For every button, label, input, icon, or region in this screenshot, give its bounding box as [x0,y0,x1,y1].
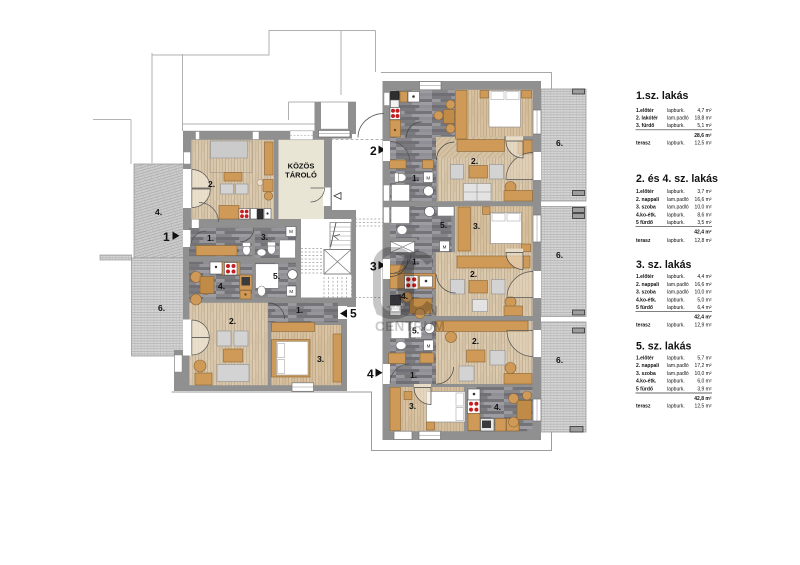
svg-text:4.: 4. [218,281,225,291]
svg-text:terasz: terasz [636,238,651,244]
svg-text:2.: 2. [208,179,215,189]
svg-text:lam.padló: lam.padló [667,371,689,377]
svg-text:42,4 m²: 42,4 m² [694,230,712,236]
svg-text:2.: 2. [472,336,479,346]
svg-text:lam.padló: lam.padló [667,363,689,369]
svg-text:2. és 4. sz. lakás: 2. és 4. sz. lakás [636,173,718,185]
svg-text:17,2 m²: 17,2 m² [695,363,712,369]
svg-text:5.: 5. [440,220,447,230]
svg-text:lapburk.: lapburk. [667,274,685,280]
svg-text:6,4 m²: 6,4 m² [697,305,712,311]
svg-text:2: 2 [370,144,377,158]
svg-text:M: M [426,175,430,180]
svg-text:M: M [427,343,431,348]
svg-text:4.: 4. [155,207,162,217]
svg-text:3.: 3. [261,232,268,242]
svg-text:M: M [289,229,293,234]
svg-text:5 fürdő: 5 fürdő [636,220,653,226]
svg-text:4,4 m²: 4,4 m² [697,274,712,280]
svg-text:8,6 m²: 8,6 m² [697,212,712,218]
svg-text:1.előtér: 1.előtér [636,274,654,280]
svg-text:2. nappali: 2. nappali [636,197,660,203]
svg-text:CENTRUM: CENTRUM [375,319,445,334]
svg-text:lapburk.: lapburk. [667,212,685,218]
svg-text:lapburk.: lapburk. [667,404,685,410]
svg-text:lam.padló: lam.padló [667,290,689,296]
svg-text:12,5 m²: 12,5 m² [695,404,712,410]
svg-text:3. fürdő: 3. fürdő [636,123,654,129]
svg-text:1.: 1. [412,173,419,183]
svg-text:6,0 m²: 6,0 m² [697,379,712,385]
svg-text:42,8 m²: 42,8 m² [694,396,712,402]
svg-text:12,5 m²: 12,5 m² [695,141,712,147]
svg-text:6.: 6. [556,250,563,260]
svg-text:lapburk.: lapburk. [667,141,685,147]
svg-text:lapburk.: lapburk. [667,386,685,392]
svg-text:1.: 1. [410,370,417,380]
svg-text:2.: 2. [471,156,478,166]
svg-text:12,8 m²: 12,8 m² [695,238,712,244]
svg-text:18,8 m²: 18,8 m² [695,116,712,122]
svg-text:lapburk.: lapburk. [667,238,685,244]
svg-text:28,6 m²: 28,6 m² [694,133,712,139]
svg-text:16,6 m²: 16,6 m² [695,197,712,203]
svg-text:6.: 6. [556,355,563,365]
svg-text:5,0 m²: 5,0 m² [697,297,712,303]
svg-text:10,0 m²: 10,0 m² [695,290,712,296]
svg-text:2.: 2. [470,269,477,279]
svg-text:OTTHON: OTTHON [375,304,439,319]
svg-text:1.: 1. [207,233,214,243]
svg-text:terasz: terasz [636,404,651,410]
svg-text:1.előtér: 1.előtér [636,108,654,114]
svg-text:4: 4 [367,367,374,381]
svg-text:4.ko-étk.: 4.ko-étk. [636,212,657,218]
svg-text:lapburk.: lapburk. [667,189,685,195]
svg-text:5 fürdő: 5 fürdő [636,386,653,392]
svg-text:3. sz. lakás: 3. sz. lakás [636,259,691,271]
svg-text:5: 5 [350,307,357,321]
svg-text:1.: 1. [296,305,303,315]
svg-text:lapburk.: lapburk. [667,356,685,362]
svg-text:lapburk.: lapburk. [667,323,685,329]
svg-text:12,9 m²: 12,9 m² [695,323,712,329]
svg-text:2. nappali: 2. nappali [636,363,660,369]
svg-text:3.: 3. [409,401,416,411]
svg-text:1.sz. lakás: 1.sz. lakás [636,90,689,102]
svg-text:3,5 m²: 3,5 m² [697,220,712,226]
svg-text:5,1 m²: 5,1 m² [697,123,712,129]
svg-text:4.ko-étk.: 4.ko-étk. [636,379,657,385]
svg-text:1.előtér: 1.előtér [636,356,654,362]
svg-text:lam.padló: lam.padló [667,197,689,203]
svg-text:lapburk.: lapburk. [667,379,685,385]
svg-text:1: 1 [163,230,170,244]
svg-text:lapburk.: lapburk. [667,123,685,129]
svg-text:3. szoba: 3. szoba [636,371,656,377]
svg-text:2. lakótér: 2. lakótér [636,116,658,122]
svg-text:5 fürdő: 5 fürdő [636,305,653,311]
svg-text:4.: 4. [494,402,501,412]
svg-text:terasz: terasz [636,141,651,147]
svg-text:M: M [443,244,447,249]
svg-text:5.: 5. [273,271,280,281]
svg-text:lapburk.: lapburk. [667,297,685,303]
svg-text:10,0 m²: 10,0 m² [695,371,712,377]
svg-text:4.ko-étk.: 4.ko-étk. [636,297,657,303]
svg-text:6.: 6. [158,303,165,313]
svg-text:3.: 3. [473,221,480,231]
svg-text:lam.padló: lam.padló [667,282,689,288]
svg-text:10,0 m²: 10,0 m² [695,205,712,211]
svg-text:terasz: terasz [636,323,651,329]
svg-text:6.: 6. [556,138,563,148]
svg-text:KÖZÖS: KÖZÖS [288,162,315,171]
svg-text:3. szoba: 3. szoba [636,205,656,211]
svg-text:3,7 m²: 3,7 m² [697,189,712,195]
svg-text:lapburk.: lapburk. [667,305,685,311]
svg-text:lapburk.: lapburk. [667,108,685,114]
svg-text:16,6 m²: 16,6 m² [695,282,712,288]
svg-text:2. nappali: 2. nappali [636,282,660,288]
svg-text:3. szoba: 3. szoba [636,290,656,296]
svg-text:TÁROLÓ: TÁROLÓ [285,171,317,180]
svg-text:M: M [289,289,293,294]
svg-text:5,7 m²: 5,7 m² [697,356,712,362]
svg-text:2.: 2. [229,316,236,326]
svg-text:42,4 m²: 42,4 m² [694,315,712,321]
svg-text:lam.padló: lam.padló [667,116,689,122]
svg-text:3,9 m²: 3,9 m² [697,386,712,392]
svg-text:5. sz. lakás: 5. sz. lakás [636,341,691,353]
svg-text:3.: 3. [317,354,324,364]
svg-text:lam.padló: lam.padló [667,205,689,211]
svg-text:4,7 m²: 4,7 m² [697,108,712,114]
svg-text:1.előtér: 1.előtér [636,189,654,195]
svg-text:lapburk.: lapburk. [667,220,685,226]
